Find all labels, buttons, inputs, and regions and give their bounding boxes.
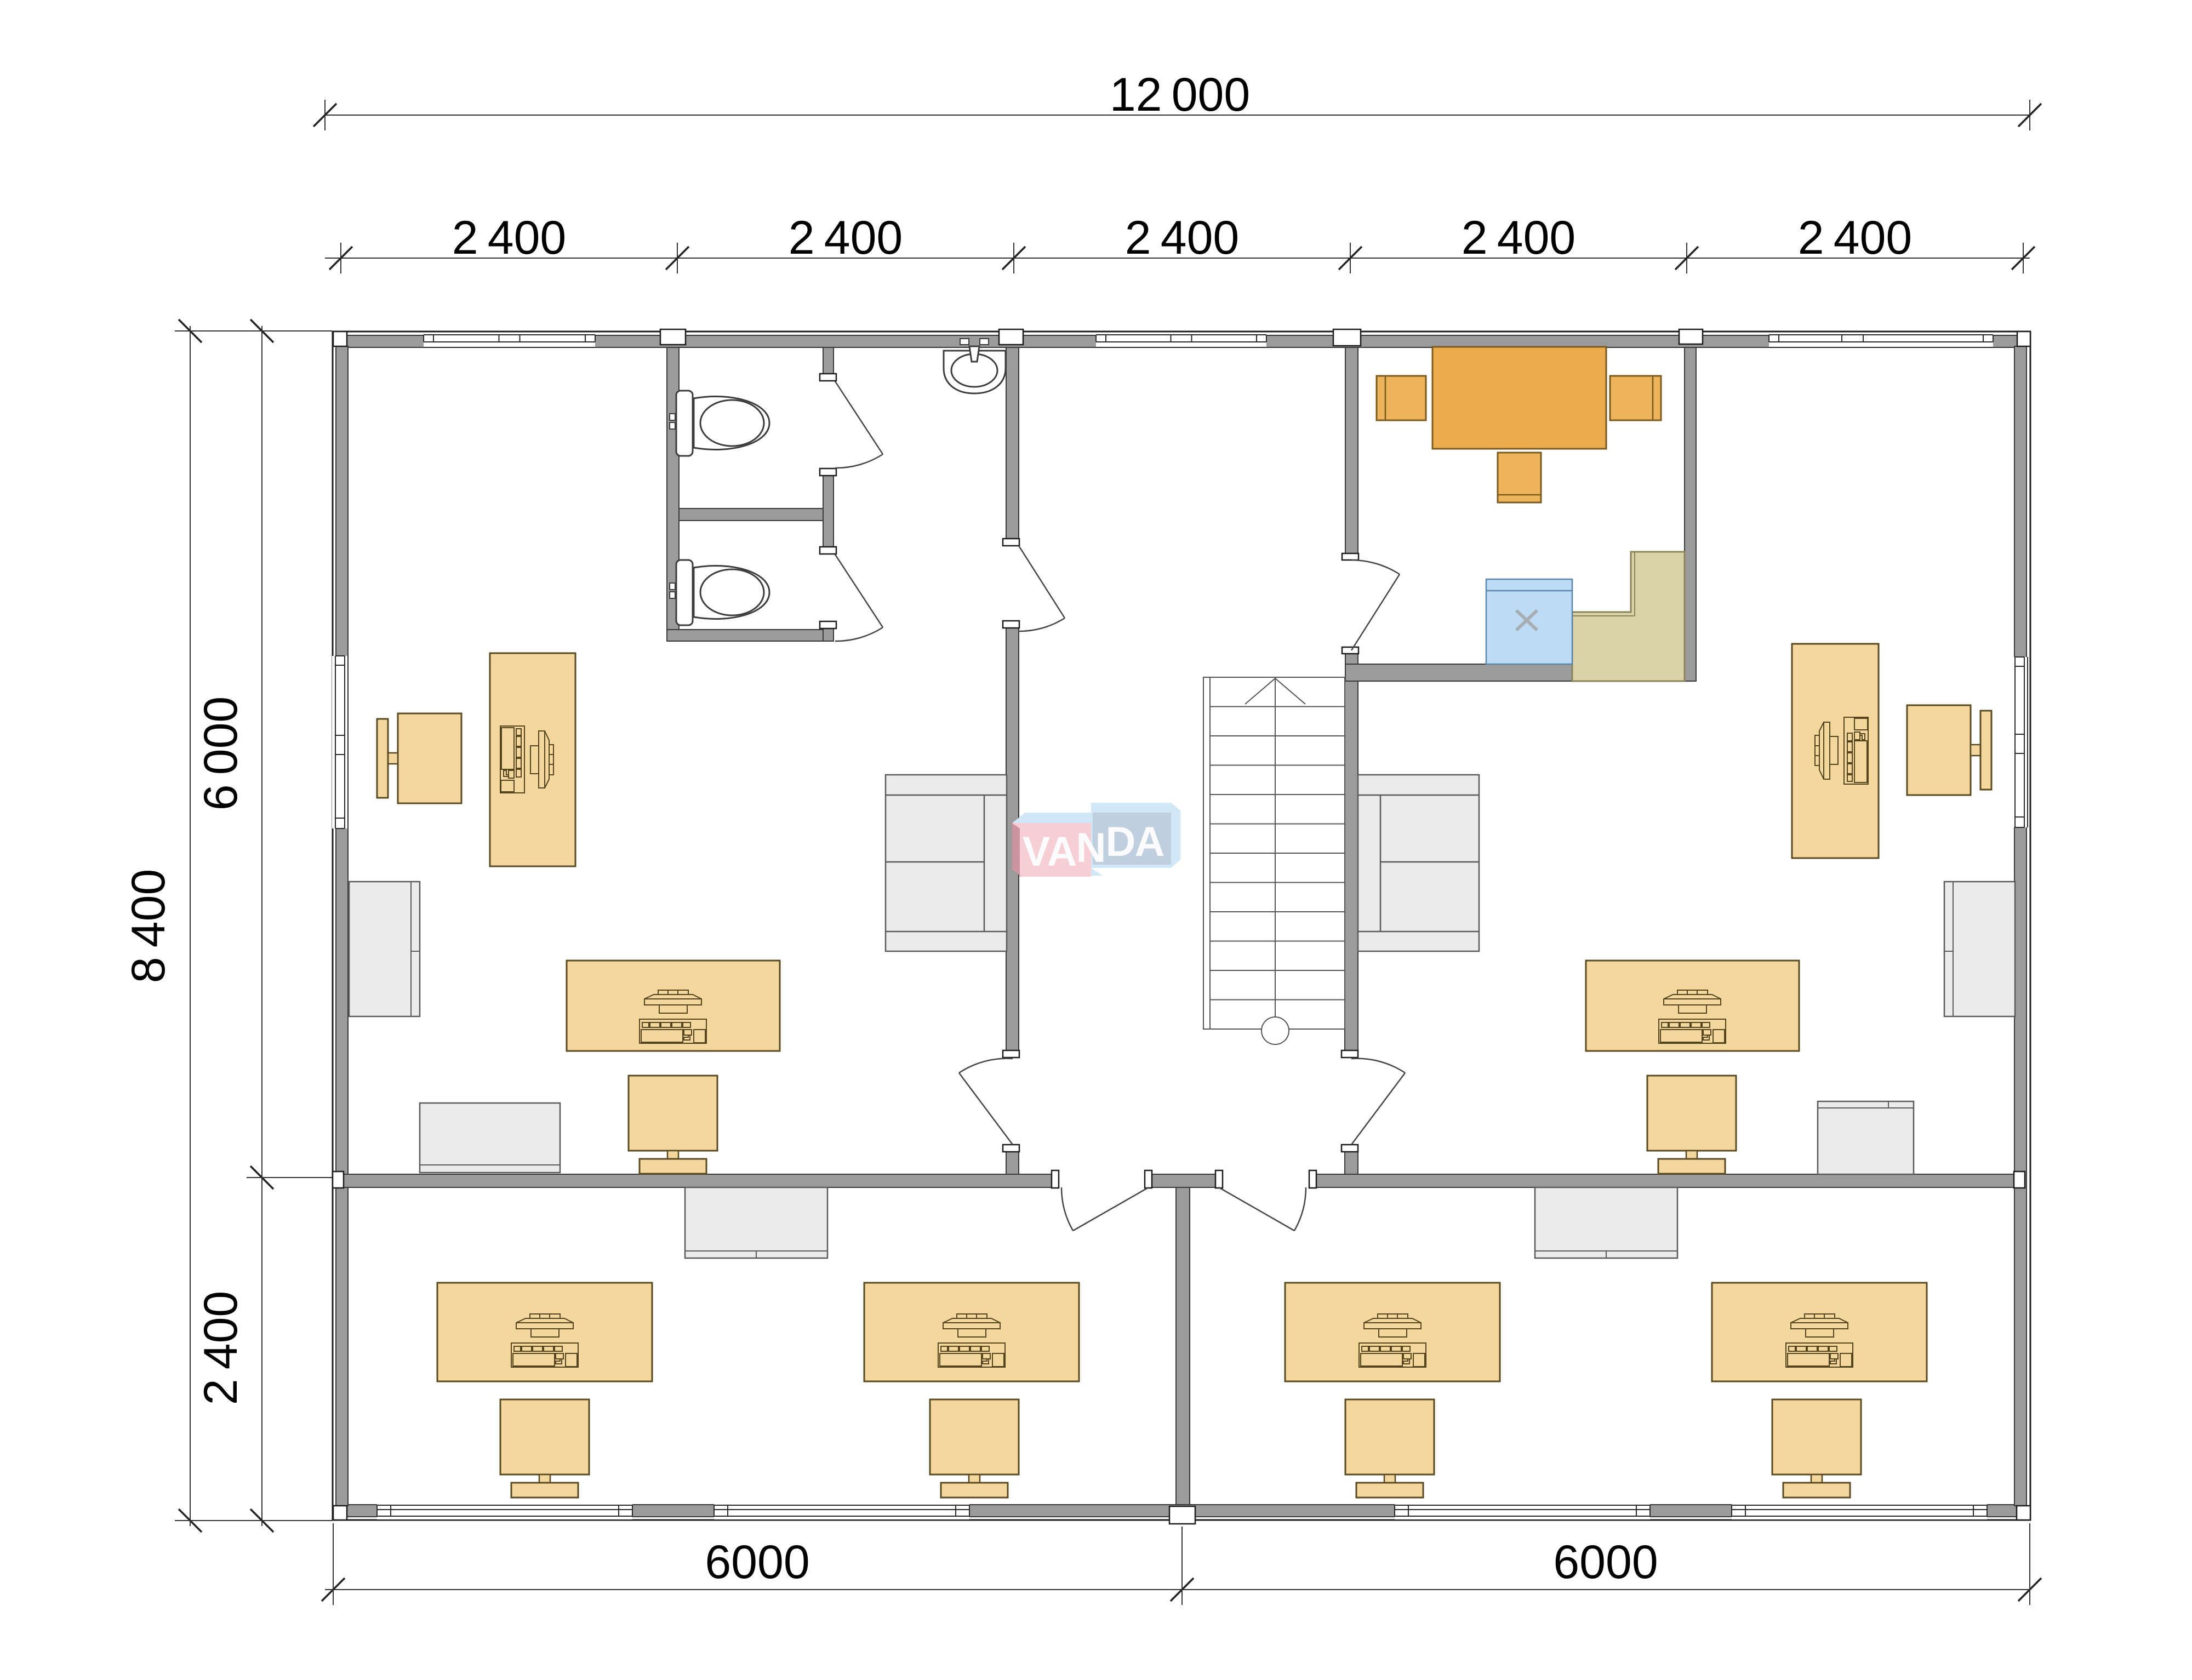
svg-text:6 000: 6 000 (195, 696, 247, 811)
svg-text:6000: 6000 (705, 1536, 809, 1588)
svg-text:2 400: 2 400 (1798, 212, 1913, 264)
svg-text:12 000: 12 000 (1110, 68, 1250, 121)
svg-text:A: A (1135, 819, 1165, 865)
svg-text:2 400: 2 400 (195, 1291, 247, 1405)
svg-text:2 400: 2 400 (452, 212, 567, 264)
svg-text:8 400: 8 400 (122, 869, 175, 984)
svg-text:N: N (1076, 825, 1106, 871)
svg-text:V: V (1023, 828, 1051, 875)
svg-text:2 400: 2 400 (1125, 212, 1240, 264)
svg-text:A: A (1047, 828, 1077, 875)
svg-text:6000: 6000 (1553, 1536, 1658, 1588)
svg-text:2 400: 2 400 (789, 212, 903, 264)
svg-text:2 400: 2 400 (1462, 212, 1576, 264)
svg-text:D: D (1106, 819, 1136, 865)
